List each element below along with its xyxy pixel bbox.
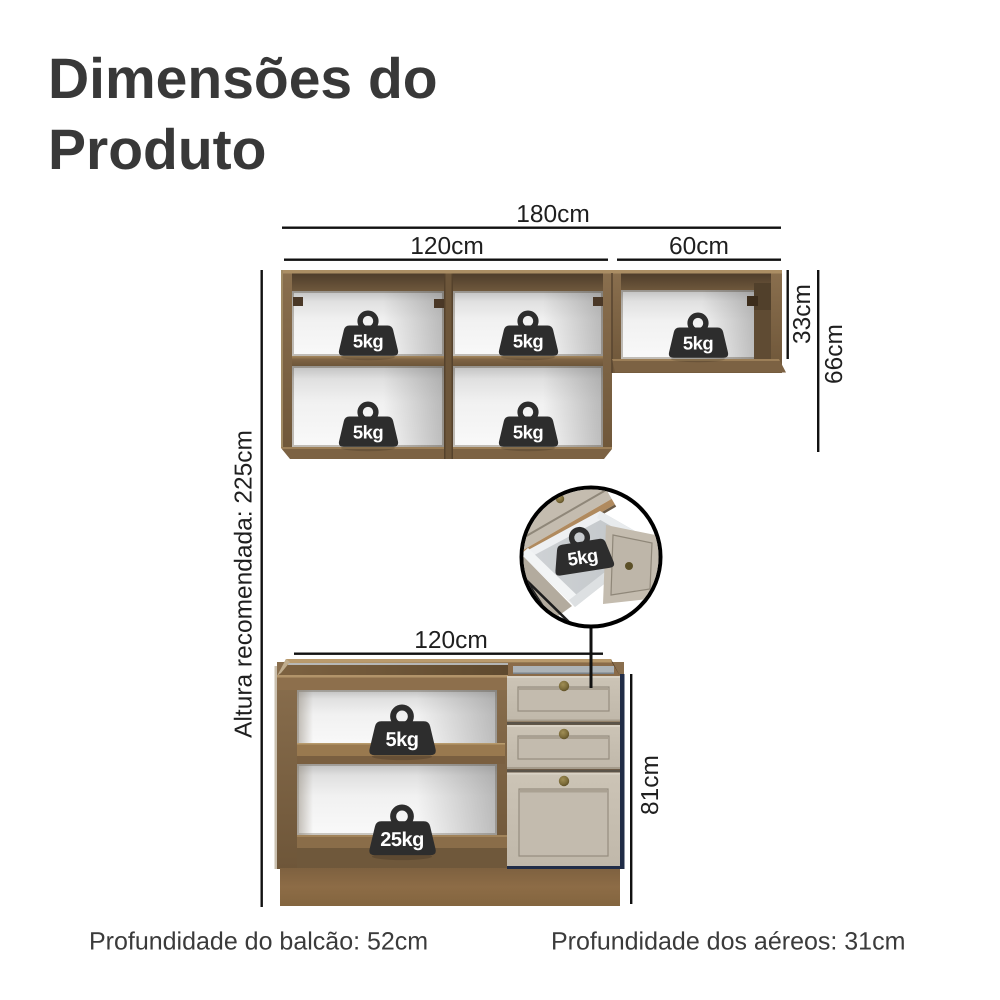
svg-text:81cm: 81cm: [637, 755, 664, 815]
svg-text:Produto: Produto: [48, 118, 266, 182]
svg-text:Profundidade do balcão: 52cm: Profundidade do balcão: 52cm: [89, 928, 428, 956]
svg-text:5kg: 5kg: [683, 333, 714, 354]
svg-text:5kg: 5kg: [513, 422, 544, 443]
svg-text:60cm: 60cm: [669, 233, 729, 260]
svg-text:Profundidade dos aéreos: 31cm: Profundidade dos aéreos: 31cm: [551, 928, 905, 956]
svg-text:5kg: 5kg: [353, 331, 384, 352]
svg-text:180cm: 180cm: [516, 201, 590, 228]
svg-text:33cm: 33cm: [789, 284, 816, 344]
svg-text:5kg: 5kg: [353, 422, 384, 443]
svg-text:Altura recomendada: 225cm: Altura recomendada: 225cm: [231, 430, 258, 738]
svg-text:25kg: 25kg: [380, 829, 424, 851]
svg-text:120cm: 120cm: [410, 233, 484, 260]
svg-text:66cm: 66cm: [821, 324, 848, 384]
svg-text:5kg: 5kg: [513, 331, 544, 352]
svg-text:5kg: 5kg: [386, 729, 419, 751]
svg-text:Dimensões do: Dimensões do: [48, 47, 438, 111]
svg-text:120cm: 120cm: [414, 627, 488, 654]
